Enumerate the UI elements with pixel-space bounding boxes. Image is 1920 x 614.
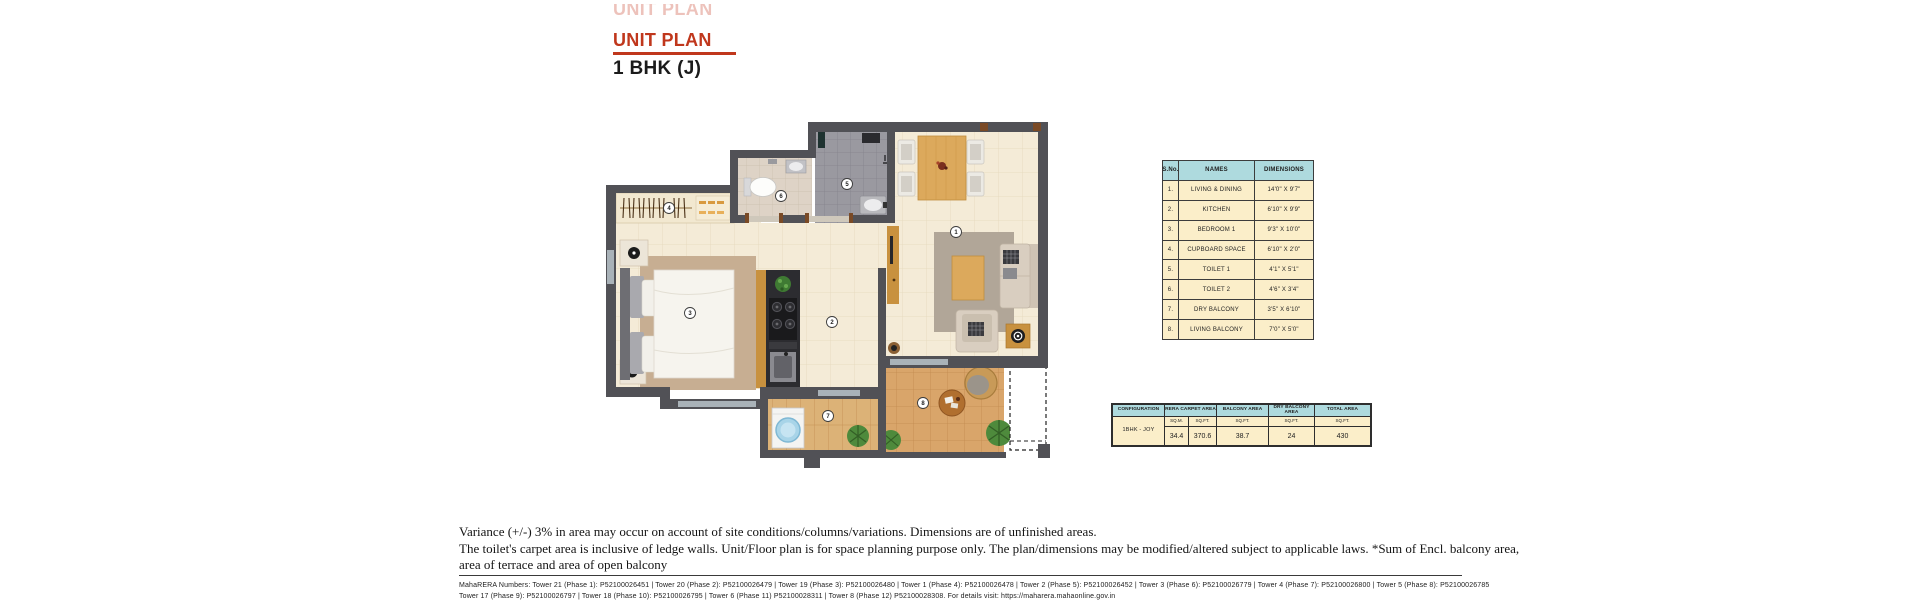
table-cell: TOILET 1 [1179, 260, 1254, 279]
round-table [939, 390, 965, 416]
col-header-sno: S.No. [1163, 161, 1178, 180]
dry-balcony-value: 24 [1269, 427, 1314, 445]
table-cell: LIVING BALCONY [1179, 320, 1254, 339]
bed-duvet [654, 270, 734, 378]
room-marker-3: 3 [685, 308, 696, 319]
rera-carpet-header: RERA CARPET AREA [1165, 405, 1216, 416]
ghost-title: UNIT PLAN [613, 4, 763, 16]
balcony-value: 38.7 [1217, 427, 1268, 445]
table-cell: 2. [1163, 201, 1178, 220]
area-summary-table: CONFIGURATION RERA CARPET AREA BALCONY A… [1111, 403, 1372, 447]
col-header-name: NAMES [1179, 161, 1254, 180]
total-area-value: 430 [1315, 427, 1370, 445]
table-cell: 5. [1163, 260, 1178, 279]
table-cell: KITCHEN [1179, 201, 1254, 220]
coffee-table [952, 256, 984, 300]
unit-type-subtitle: 1 BHK (J) [613, 58, 701, 80]
table-cell: 8. [1163, 320, 1178, 339]
balcony-header: BALCONY AREA [1217, 405, 1268, 416]
bed-headboard [620, 268, 630, 380]
room-marker-7: 7 [823, 411, 834, 422]
sofa [1000, 244, 1038, 308]
unit-label: SQ.FT. [1189, 417, 1216, 426]
maharera-footer: MahaRERA Numbers: Tower 21 (Phase 1): P5… [459, 581, 1489, 602]
wc-icon [750, 178, 776, 197]
shaft-item [818, 132, 825, 148]
config-value: 1BHK - JOY [1113, 417, 1164, 445]
room-marker-8: 8 [918, 398, 929, 409]
table-cell: DRY BALCONY [1179, 300, 1254, 319]
rera-sqm-value: 34.4 [1165, 427, 1188, 445]
dry-balcony-header: DRY BALCONY AREA [1269, 405, 1314, 416]
table-cell: 6. [1163, 280, 1178, 299]
table-cell: 7'0" X 5'0" [1255, 320, 1313, 339]
room-marker-5: 5 [842, 179, 853, 190]
table-cell: TOILET 2 [1179, 280, 1254, 299]
dashed-open-area [1010, 366, 1046, 450]
disclaimer-text: Variance (+/-) 3% in area may occur on a… [459, 524, 1519, 574]
unit-label: SQ.FT. [1269, 417, 1314, 426]
unit-label: SQ.FT. [1217, 417, 1268, 426]
table-cell: 4'6" X 3'4" [1255, 280, 1313, 299]
room-marker-2: 2 [827, 317, 838, 328]
table-cell: CUPBOARD SPACE [1179, 241, 1254, 260]
room-marker-1: 1 [951, 227, 962, 238]
washing-machine [772, 408, 804, 448]
page: UNIT PLAN UNIT PLAN 1 BHK (J) [0, 0, 1920, 614]
page-title: UNIT PLAN [613, 30, 712, 51]
footer-divider [459, 575, 1462, 576]
table-cell: 1. [1163, 181, 1178, 200]
col-header-dim: DIMENSIONS [1255, 161, 1313, 180]
table-cell: BEDROOM 1 [1179, 221, 1254, 240]
armchair [956, 310, 998, 352]
dimensions-table: S.No. NAMES DIMENSIONS 1. LIVING & DININ… [1162, 160, 1314, 340]
maharera-line-2: Tower 17 (Phase 9): P52100026797 | Tower… [459, 592, 1489, 603]
geyser [862, 133, 880, 143]
table-cell: 7. [1163, 300, 1178, 319]
table-cell: 14'0" X 9'7" [1255, 181, 1313, 200]
table-cell: 9'3" X 10'0" [1255, 221, 1313, 240]
room-marker-6: 6 [776, 191, 787, 202]
table-cell: LIVING & DINING [1179, 181, 1254, 200]
plant-icon [847, 425, 869, 447]
disclaimer-line-3: area of terrace and area of open balcony [459, 557, 1519, 574]
maharera-line-1: MahaRERA Numbers: Tower 21 (Phase 1): P5… [459, 581, 1489, 592]
table-cell: 4'1" X 5'1" [1255, 260, 1313, 279]
total-area-header: TOTAL AREA [1315, 405, 1370, 416]
table-cell: 3'5" X 6'10" [1255, 300, 1313, 319]
wicker-chair [965, 367, 997, 399]
table-cell: 6'10" X 9'9" [1255, 201, 1313, 220]
unit-label: SQ.M. [1165, 417, 1188, 426]
disclaimer-line-1: Variance (+/-) 3% in area may occur on a… [459, 524, 1519, 541]
shelf-item [768, 159, 777, 164]
table-cell: 6'10" X 2'0" [1255, 241, 1313, 260]
title-underline [613, 52, 736, 55]
rera-sqft-value: 370.6 [1189, 427, 1216, 445]
disclaimer-line-2: The toilet's carpet area is inclusive of… [459, 541, 1519, 558]
unit-label: SQ.FT. [1315, 417, 1370, 426]
config-header: CONFIGURATION [1113, 405, 1164, 416]
table-cell: 3. [1163, 221, 1178, 240]
room-marker-4: 4 [664, 203, 675, 214]
floor-plan: 1 2 3 4 5 6 7 8 [590, 100, 1070, 480]
table-cell: 4. [1163, 241, 1178, 260]
kitchen-side-panel [756, 270, 766, 388]
